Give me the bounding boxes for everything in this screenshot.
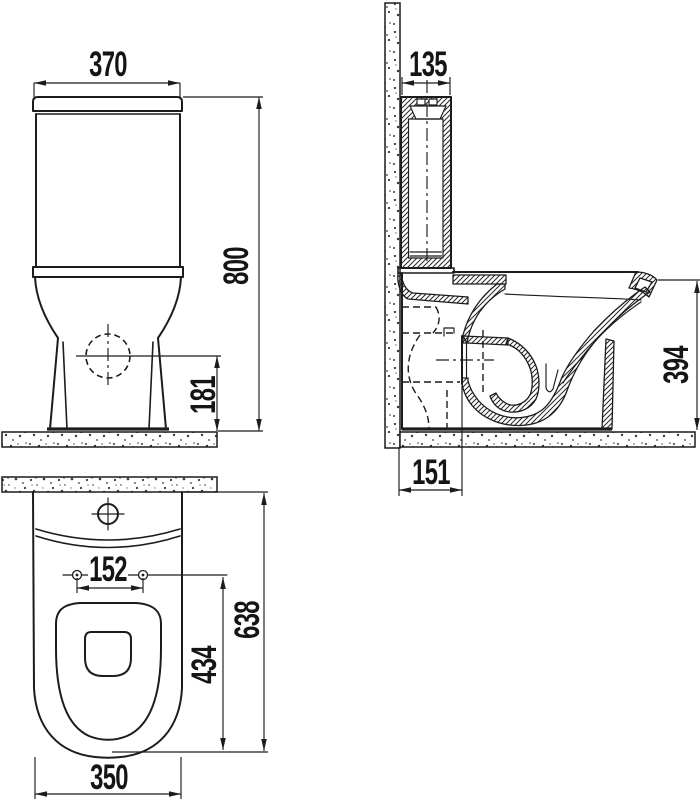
- dim-side-bowl-height-label: 394: [658, 345, 697, 384]
- technical-drawing-page: 370 800 181: [0, 0, 700, 800]
- wall-hatch: [385, 3, 400, 448]
- seat-hole-right-dot: [142, 574, 145, 577]
- bowl-front-wall-section: [463, 284, 505, 343]
- dim-top-hole-spacing-label: 152: [89, 551, 127, 590]
- trap-weir-section: [490, 338, 539, 412]
- back-leg-section: [602, 339, 614, 429]
- seat-outline: [56, 603, 161, 740]
- dim-top-overall-depth: 638: [112, 492, 268, 752]
- bowl-opening: [85, 632, 131, 676]
- floor-hatch-front: [2, 432, 217, 447]
- seat-hole-left-dot: [76, 574, 79, 577]
- dim-top-seat-depth-label: 434: [186, 645, 225, 684]
- button-crosshair: [92, 498, 124, 530]
- trap-outer-wall-section: [462, 287, 650, 426]
- wall-hatch-plan: [2, 477, 217, 492]
- bowl-inner-top-edge: [505, 294, 641, 300]
- dim-front-width-label: 370: [89, 46, 127, 85]
- dim-top-overall-depth-label: 638: [229, 601, 268, 639]
- dim-front-overall-height-label: 800: [218, 247, 257, 285]
- cistern-front-arcs: [36, 529, 180, 548]
- front-view: 370 800 181: [2, 46, 263, 447]
- dim-side-tank-depth: 135: [402, 46, 450, 95]
- dim-side-bowl-height: 394: [658, 280, 700, 430]
- dim-top-hole-spacing: 152: [77, 551, 143, 593]
- dim-side-outlet-projection-label: 151: [412, 454, 450, 493]
- cistern-body-sides: [36, 114, 180, 267]
- cistern-base-plate: [398, 268, 454, 273]
- dim-top-seat-depth: 434: [186, 577, 226, 750]
- side-section-view: 135 394 151: [385, 3, 700, 496]
- dim-side-tank-depth-label: 135: [409, 46, 447, 85]
- valve-seat-lines: [410, 252, 442, 256]
- flush-jet-tongue: [546, 364, 558, 392]
- floor-hatch-side: [400, 432, 695, 447]
- toilet-dimension-drawing: 370 800 181: [0, 0, 700, 800]
- rim-section-strip: [453, 275, 506, 284]
- top-plan-view: 152 434 638 350: [2, 477, 268, 799]
- cistern-inner: [409, 119, 444, 258]
- cistern-lid: [33, 97, 182, 111]
- bowl-rim-plate: [33, 267, 183, 277]
- outlet-bracket-mark: [444, 328, 454, 336]
- outlet-top-wall: [463, 336, 508, 345]
- dim-front-width: 370: [34, 46, 180, 97]
- dim-top-bowl-width-label: 350: [90, 759, 128, 798]
- dim-top-bowl-width: 350: [35, 757, 181, 799]
- dim-front-outlet-height-label: 181: [185, 376, 224, 414]
